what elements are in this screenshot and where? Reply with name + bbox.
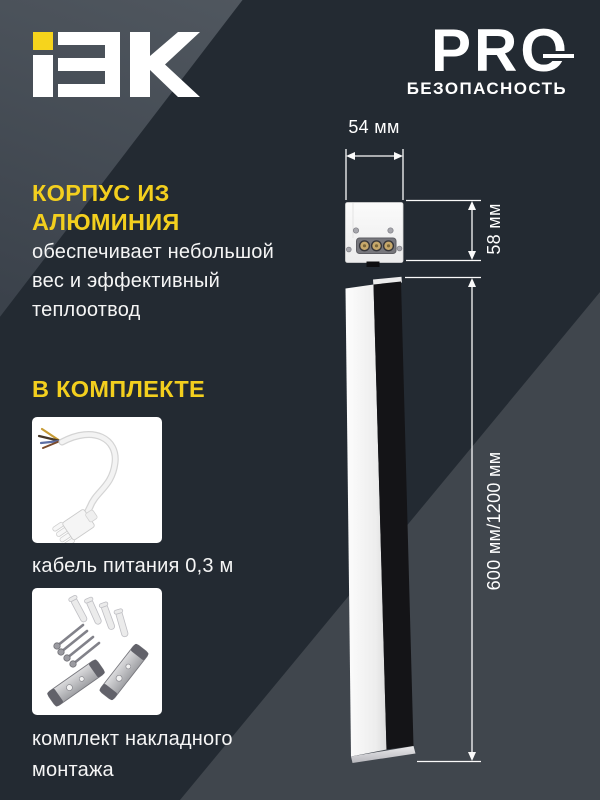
product-banner: PRO БЕЗОПАСНОСТЬ КОРПУС ИЗ АЛЮМИНИЯ обес… xyxy=(0,0,600,800)
dimension-width-label: 54 мм xyxy=(348,117,399,137)
kit-heading: В КОМПЛЕКТЕ xyxy=(32,375,292,404)
dimension-height-label: 58 мм xyxy=(484,203,504,254)
mounting-kit-photo xyxy=(32,588,162,715)
iek-logo xyxy=(33,30,200,97)
luminaire-top-cap xyxy=(373,277,402,286)
iek-logo-k xyxy=(130,32,200,97)
power-cable-photo xyxy=(32,417,162,543)
cable xyxy=(62,435,115,517)
iek-logo-dot xyxy=(33,32,53,50)
stripped-wires xyxy=(39,429,60,448)
dimension-height xyxy=(406,201,481,261)
cable-plug xyxy=(52,504,102,543)
cap-tab xyxy=(367,262,380,268)
kit-caption-cable: кабель питания 0,3 м xyxy=(32,553,294,579)
mounting-kit-illustration xyxy=(32,588,162,715)
pro-o-dash xyxy=(543,54,574,58)
pro-badge: PRO БЕЗОПАСНОСТЬ xyxy=(407,24,567,99)
wall-plugs xyxy=(68,595,130,638)
terminals xyxy=(359,240,394,251)
iek-logo-e xyxy=(58,32,120,97)
power-cable-illustration xyxy=(32,417,162,543)
luminaire-end-view xyxy=(346,203,404,268)
kit-caption-mounting: комплект накладного монтажа xyxy=(32,724,264,786)
dimension-width xyxy=(346,149,403,200)
feature-heading: КОРПУС ИЗ АЛЮМИНИЯ xyxy=(32,179,252,237)
terminal-block xyxy=(357,238,397,254)
iek-logo-i xyxy=(33,55,53,97)
pro-badge-title: PRO xyxy=(431,24,570,78)
cap-screws xyxy=(346,228,402,252)
feature-description: обеспечивает небольшой вес и эффективный… xyxy=(32,238,280,325)
